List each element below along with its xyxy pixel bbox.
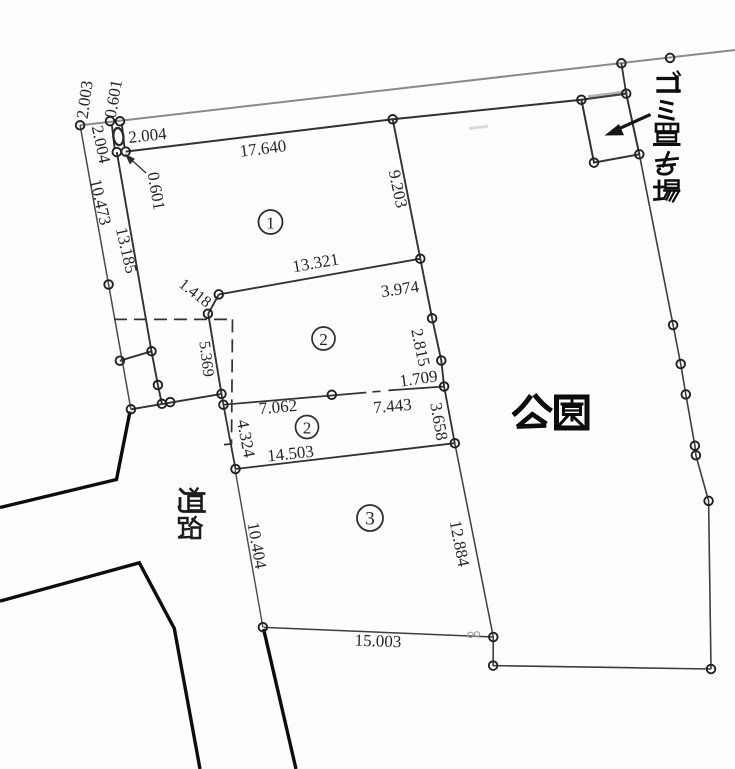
svg-text:9.203: 9.203 bbox=[385, 168, 412, 209]
svg-text:2: 2 bbox=[303, 419, 312, 438]
svg-text:1: 1 bbox=[266, 214, 275, 233]
svg-text:2.004: 2.004 bbox=[88, 124, 115, 166]
svg-text:10.404: 10.404 bbox=[244, 521, 271, 571]
svg-text:13.185: 13.185 bbox=[112, 225, 141, 275]
svg-text:17.640: 17.640 bbox=[239, 136, 288, 161]
svg-text:7.443: 7.443 bbox=[373, 395, 413, 417]
svg-text:4.324: 4.324 bbox=[233, 418, 259, 460]
svg-text:14.503: 14.503 bbox=[266, 442, 314, 466]
svg-text:2: 2 bbox=[319, 330, 328, 349]
svg-text:3.974: 3.974 bbox=[380, 277, 421, 301]
svg-text:7.062: 7.062 bbox=[258, 396, 298, 418]
svg-text:12.884: 12.884 bbox=[446, 519, 474, 569]
svg-text:13.321: 13.321 bbox=[291, 249, 340, 276]
svg-text:2.004: 2.004 bbox=[127, 124, 168, 147]
svg-text:3: 3 bbox=[365, 509, 375, 530]
svg-text:1.418: 1.418 bbox=[175, 276, 214, 312]
svg-text:5.369: 5.369 bbox=[195, 340, 216, 378]
svg-text:2.003: 2.003 bbox=[73, 79, 97, 120]
svg-text:0.601: 0.601 bbox=[101, 78, 126, 119]
svg-text:2.815: 2.815 bbox=[407, 327, 434, 368]
svg-text:0.601: 0.601 bbox=[144, 171, 169, 212]
svg-text:10.473: 10.473 bbox=[86, 177, 115, 227]
svg-text:15.003: 15.003 bbox=[354, 631, 401, 652]
